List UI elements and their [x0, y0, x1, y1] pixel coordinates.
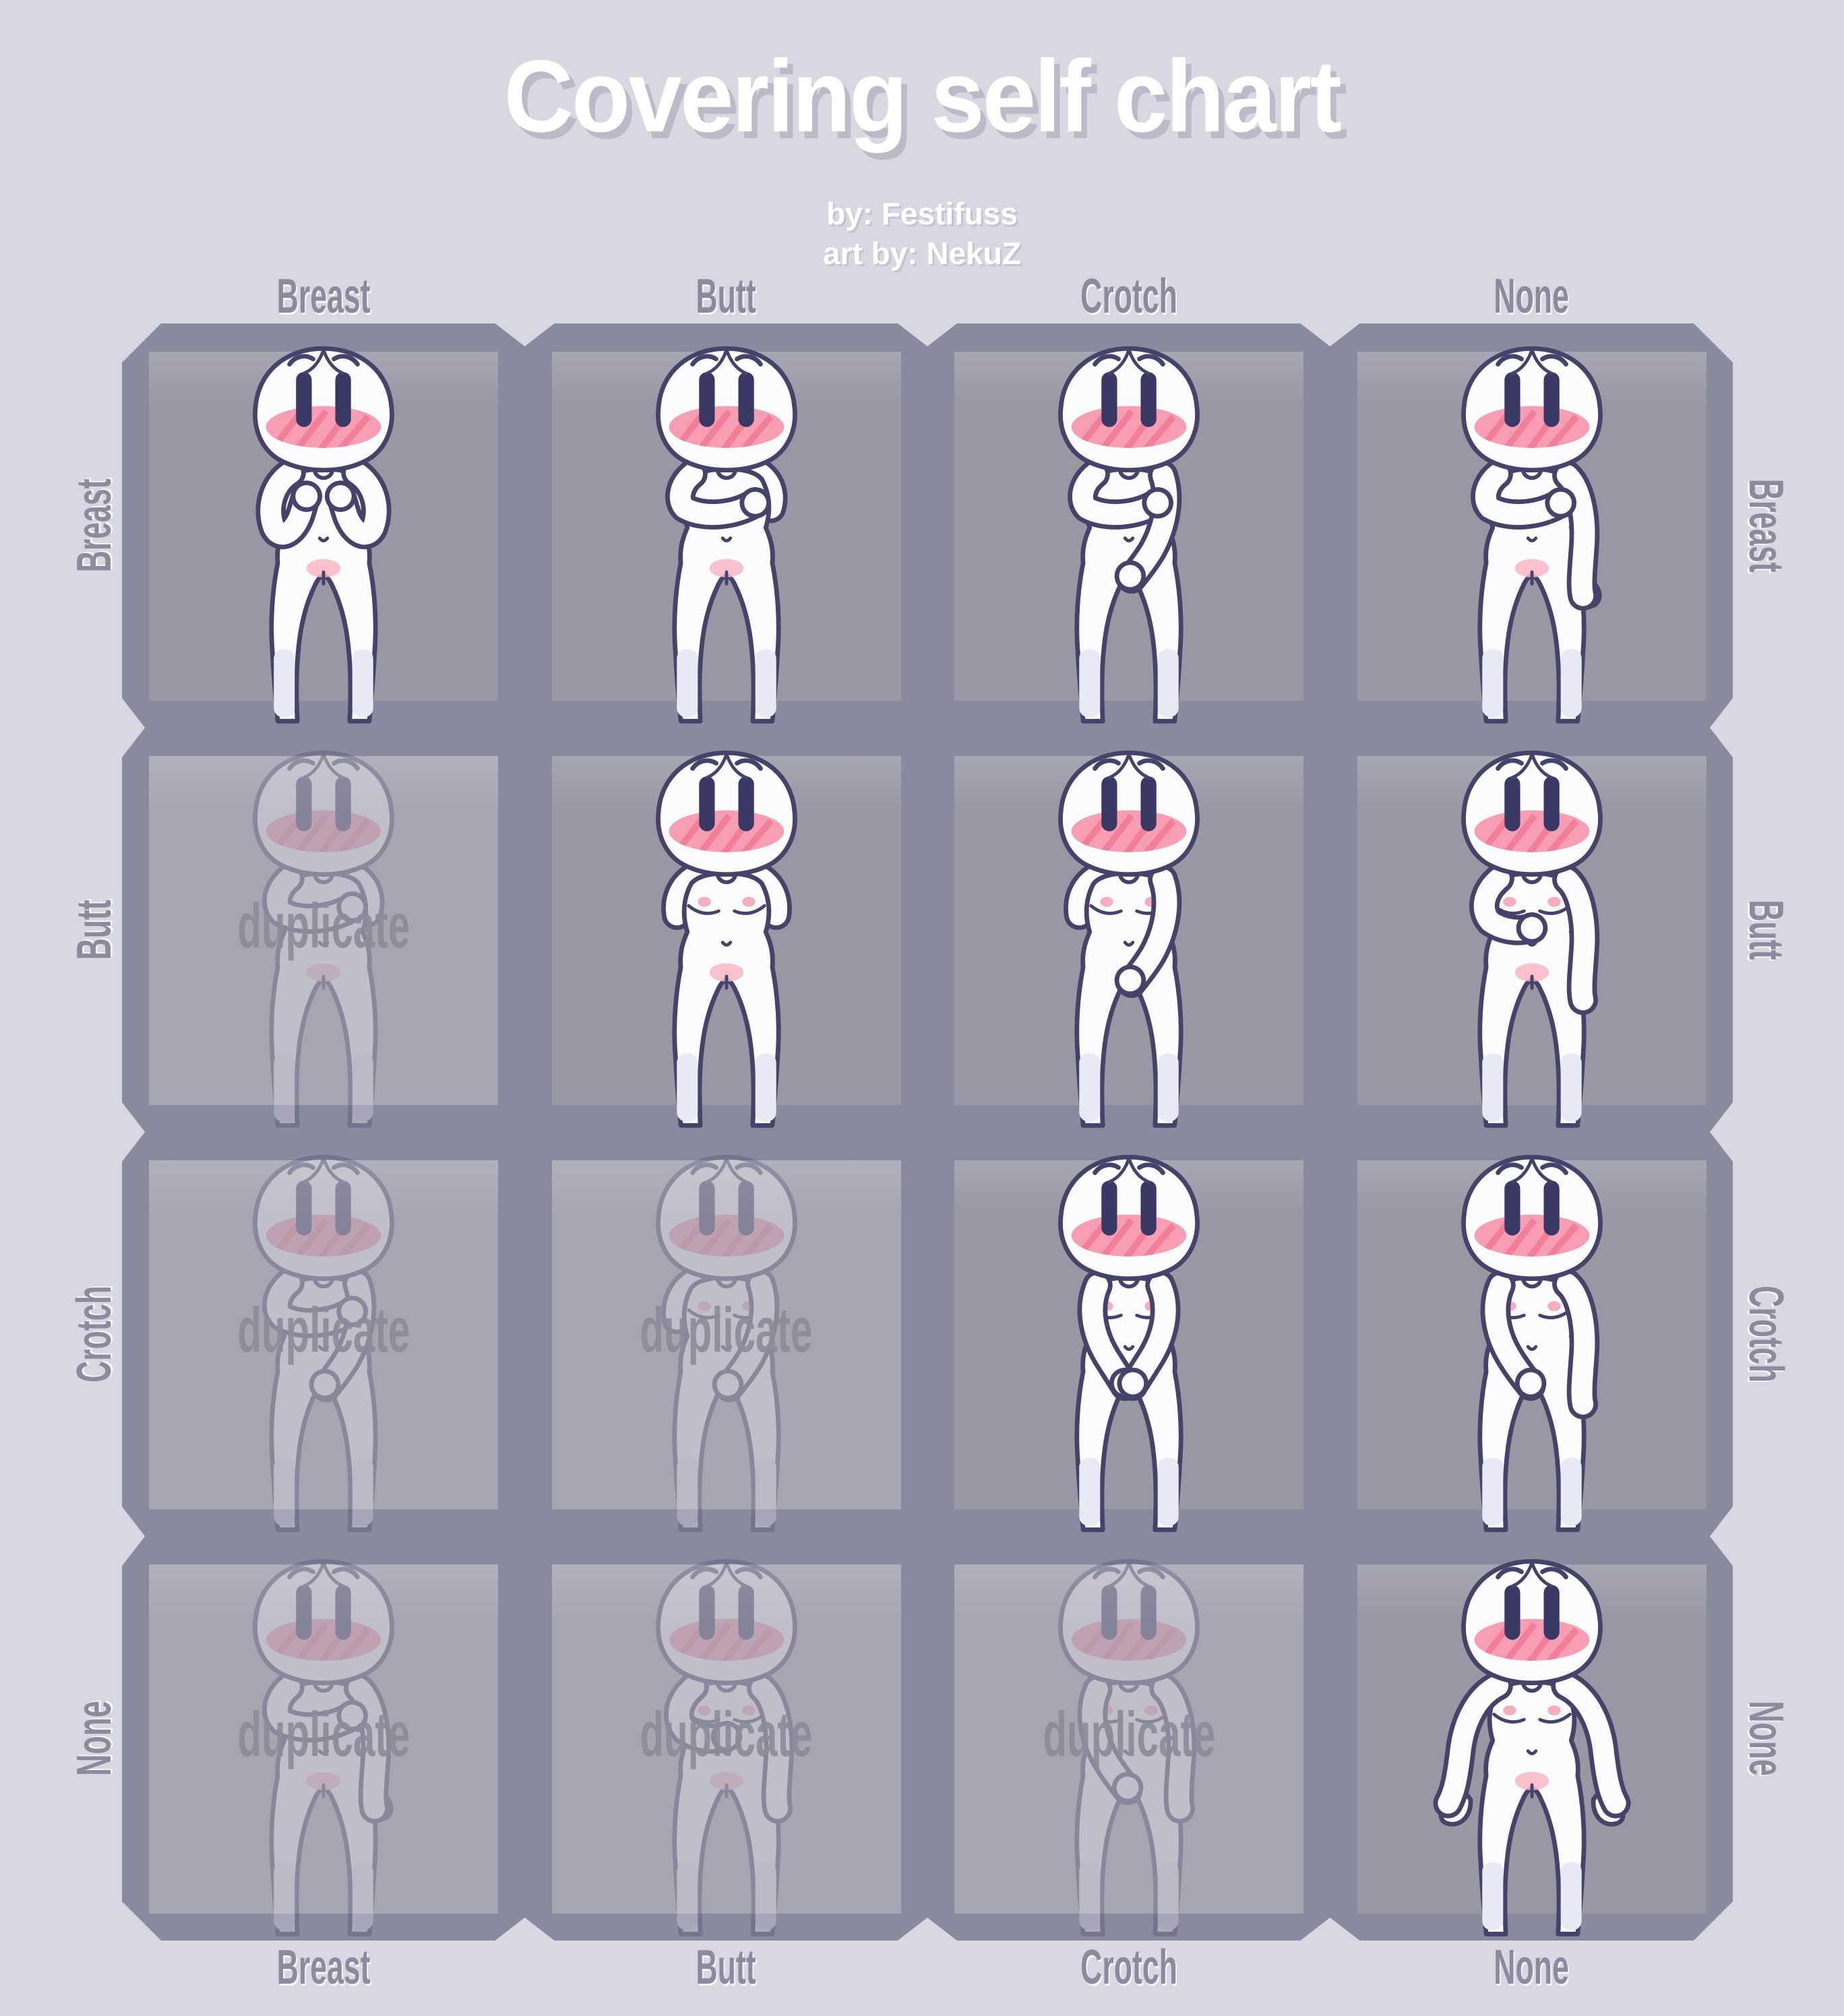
left-eye [296, 372, 311, 427]
right-eye [1543, 372, 1559, 427]
left-eye [296, 1585, 311, 1639]
column-label-bottom-none: None [1330, 1943, 1733, 1992]
character-figure [525, 333, 928, 728]
right-eye [1140, 1585, 1156, 1639]
grid-cell-none-butt: duplicate [525, 1536, 928, 1941]
column-label-bottom-butt: Butt [525, 1943, 928, 1992]
grid-cell-none-none [1330, 1536, 1733, 1941]
grid-cell-crotch-butt: duplicate [525, 1132, 928, 1536]
duplicate-watermark: duplicate [122, 889, 525, 962]
character-figure [1330, 1546, 1733, 1941]
credit-author: by: Festifuss [0, 194, 1844, 234]
left-eye [699, 372, 714, 427]
character-figure [1330, 1141, 1733, 1536]
right-eye [335, 776, 350, 831]
page-title-text: Covering self chart [504, 38, 1341, 156]
left-eye [1101, 1585, 1117, 1639]
left-eye [296, 776, 311, 831]
row-label-left-butt: Butt [67, 728, 121, 1132]
grid-cell-none-crotch: duplicate [927, 1536, 1330, 1941]
grid-cell-breast-breast [122, 323, 525, 728]
character-figure [927, 333, 1330, 728]
duplicate-watermark: duplicate [525, 1294, 928, 1366]
character-figure [1330, 737, 1733, 1132]
left-eye [1504, 776, 1520, 831]
left-eye [1504, 1585, 1520, 1639]
duplicate-watermark: duplicate [927, 1698, 1330, 1771]
column-label-top-none: None [1330, 272, 1733, 321]
row-label-right-none: None [1739, 1536, 1793, 1941]
right-eye [335, 1585, 350, 1639]
grid-cell-crotch-breast: duplicate [122, 1132, 525, 1536]
left-eye [1101, 372, 1117, 427]
grid-cell-butt-crotch [927, 728, 1330, 1132]
credit-artist: art by: NekuZ [0, 234, 1844, 274]
grid-cell-crotch-crotch [927, 1132, 1330, 1536]
row-label-left-crotch: Crotch [67, 1132, 121, 1536]
grid-cell-crotch-none [1330, 1132, 1733, 1536]
grid-cell-none-breast: duplicate [122, 1536, 525, 1941]
left-eye [1504, 1180, 1520, 1235]
right-eye [738, 1180, 754, 1235]
character-figure [927, 1141, 1330, 1536]
character-figure [927, 737, 1330, 1132]
right-eye [738, 372, 754, 427]
page-title: Covering self chart [0, 38, 1844, 156]
right-eye [1140, 1180, 1156, 1235]
grid-cell-breast-butt [525, 323, 928, 728]
row-label-right-butt: Butt [1739, 728, 1793, 1132]
credits: by: Festifuss art by: NekuZ [0, 194, 1844, 274]
right-eye [1140, 372, 1156, 427]
chart-frame: duplicateduplicateduplicateduplicatedupl… [122, 323, 1733, 1941]
right-eye [335, 1180, 350, 1235]
right-eye [1543, 776, 1559, 831]
grid-cell-breast-crotch [927, 323, 1330, 728]
right-eye [1140, 776, 1156, 831]
grid-cell-butt-none [1330, 728, 1733, 1132]
character-figure [525, 737, 928, 1132]
right-eye [1543, 1180, 1559, 1235]
left-eye [1504, 372, 1520, 427]
row-label-right-breast: Breast [1739, 323, 1793, 728]
grid-cell-butt-butt [525, 728, 928, 1132]
column-label-top-breast: Breast [122, 272, 525, 321]
duplicate-watermark: duplicate [525, 1698, 928, 1771]
covering-self-chart-page: Covering self chart by: Festifuss art by… [0, 0, 1844, 2016]
right-eye [335, 372, 350, 427]
grid-cell-butt-breast: duplicate [122, 728, 525, 1132]
right-eye [1543, 1585, 1559, 1639]
column-label-top-crotch: Crotch [927, 272, 1330, 321]
left-eye [1101, 1180, 1117, 1235]
row-label-right-crotch: Crotch [1739, 1132, 1793, 1536]
left-eye [296, 1180, 311, 1235]
left-eye [699, 1585, 714, 1639]
character-figure [122, 333, 525, 728]
column-label-bottom-crotch: Crotch [927, 1943, 1330, 1992]
grid-cell-breast-none [1330, 323, 1733, 728]
character-figure [1330, 333, 1733, 728]
duplicate-watermark: duplicate [122, 1698, 525, 1771]
right-eye [738, 776, 754, 831]
left-eye [699, 776, 714, 831]
right-eye [738, 1585, 754, 1639]
left-eye [1101, 776, 1117, 831]
row-label-left-none: None [67, 1536, 121, 1941]
left-eye [699, 1180, 714, 1235]
row-label-left-breast: Breast [67, 323, 121, 728]
duplicate-watermark: duplicate [122, 1294, 525, 1366]
column-label-bottom-breast: Breast [122, 1943, 525, 1992]
column-label-top-butt: Butt [525, 272, 928, 321]
